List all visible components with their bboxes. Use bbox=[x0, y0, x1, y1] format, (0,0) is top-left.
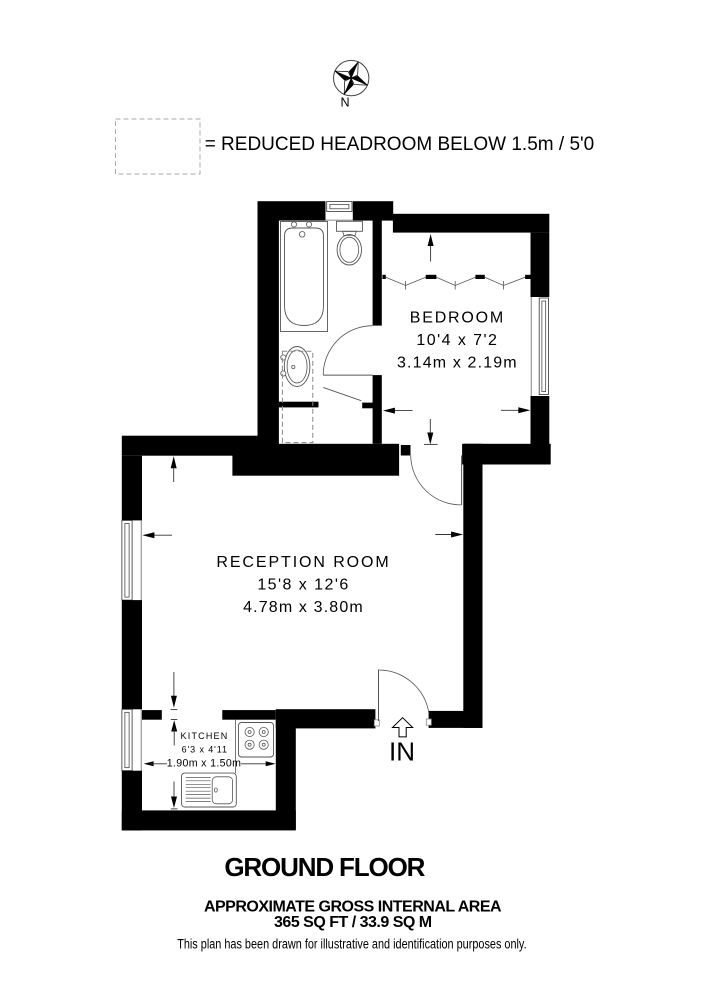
svg-text:6'3 x 4'11: 6'3 x 4'11 bbox=[182, 745, 228, 755]
svg-text:RECEPTION ROOM: RECEPTION ROOM bbox=[216, 554, 390, 571]
svg-text:This plan has been drawn for i: This plan has been drawn for illustrativ… bbox=[177, 937, 526, 952]
svg-text:= REDUCED HEADROOM BELOW 1.5m: = REDUCED HEADROOM BELOW 1.5m / 5'0 bbox=[205, 134, 595, 155]
svg-text:IN: IN bbox=[389, 737, 415, 767]
svg-text:4.78m x 3.80m: 4.78m x 3.80m bbox=[243, 599, 364, 616]
svg-text:KITCHEN: KITCHEN bbox=[181, 731, 229, 741]
svg-text:365 SQ FT / 33.9 SQ M: 365 SQ FT / 33.9 SQ M bbox=[274, 914, 432, 931]
svg-text:15'8 x 12'6: 15'8 x 12'6 bbox=[257, 577, 349, 594]
svg-text:BEDROOM: BEDROOM bbox=[410, 310, 505, 327]
svg-text:N: N bbox=[340, 96, 349, 110]
svg-text:10'4 x 7'2: 10'4 x 7'2 bbox=[416, 332, 498, 349]
svg-text:1.90m x 1.50m: 1.90m x 1.50m bbox=[167, 758, 242, 770]
svg-text:3.14m x 2.19m: 3.14m x 2.19m bbox=[397, 354, 518, 371]
svg-text:GROUND FLOOR: GROUND FLOOR bbox=[224, 852, 425, 882]
